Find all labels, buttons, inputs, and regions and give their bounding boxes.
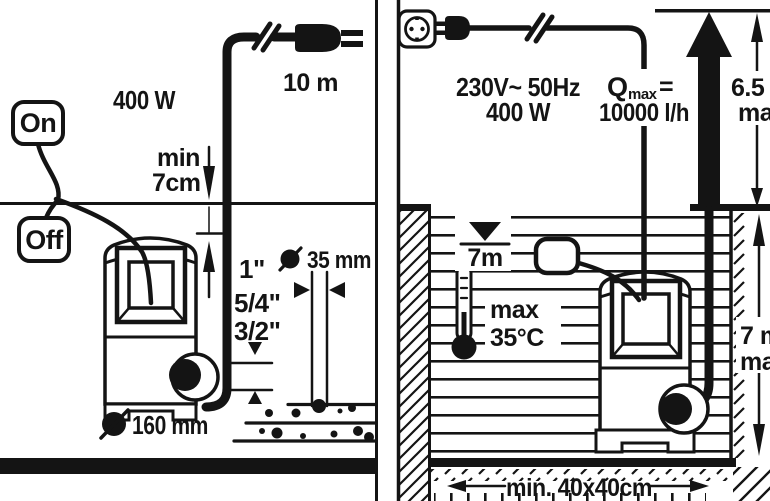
label-thread-54: 5/4" [234,288,280,318]
label-switch-off: Off [25,225,64,255]
label-thread-32: 3/2" [234,316,280,346]
label-temp-max: max [490,296,539,324]
power-plug-icon [435,16,470,40]
label-max-immersion: 7m [467,244,502,272]
label-qmax-eq: = [659,73,673,101]
label-thread-1: 1" [239,254,265,284]
label-pit-size: min. 40x40cm [506,474,652,501]
label-pit-depth-value: 7 m [740,322,770,350]
pit-floor [429,458,736,467]
label-head-max: max [738,99,770,127]
ground-bar [0,458,376,474]
min-immersion-dimension [197,147,222,297]
delivery-arrow-head [686,12,732,57]
pit-left-wall-hatch [399,211,429,501]
label-7cm: 7cm [152,169,201,197]
label-power-left: 400 W [113,85,176,115]
ground-line-left [398,204,431,211]
arrow-right-icon [294,282,310,298]
label-pit-depth-max: max [740,348,770,376]
label-temp-value: 35°C [490,324,544,352]
pump-outlet-port [169,359,201,391]
label-160mm: 160 mm [132,410,208,440]
pump-recess-inner [623,294,669,344]
diagram-canvas: 400 W 10 m On Off min 7cm 1" 5/4" 3/2" 3… [0,0,770,501]
left-panel: 400 W 10 m On Off min 7cm 1" 5/4" 3/2" 3… [0,24,376,474]
head-reference-line [655,9,770,13]
outlet-size-dimension [231,342,272,404]
pump-hose [206,37,256,407]
label-flow-value: 10000 l/h [599,99,689,127]
pump-left [105,238,218,420]
label-power-right: 400 W [486,97,551,127]
wall-socket-icon [399,11,435,47]
label-min: min [157,144,200,172]
corner-hatch [733,467,770,501]
arrow-left-icon [329,282,345,298]
label-qmax-q: Q [607,72,628,102]
label-35mm: 35 mm [307,247,371,274]
particle-gap-pipes [294,272,345,413]
label-switch-on: On [20,108,57,138]
power-plug-icon [295,24,363,52]
pump-right [596,272,708,452]
delivery-arrow-shaft [698,52,720,211]
float-switch [536,239,578,273]
label-head-value: 6.5 m [731,74,770,102]
pump-spec-diagram: 400 W 10 m On Off min 7cm 1" 5/4" 3/2" 3… [0,0,770,501]
pump-outlet-port [660,393,692,425]
label-cable-length: 10 m [283,69,338,97]
right-panel: 7m max 35°C 230V~ 50Hz 400 W Q max = 100… [398,9,770,501]
diameter-icon-35 [280,248,301,270]
